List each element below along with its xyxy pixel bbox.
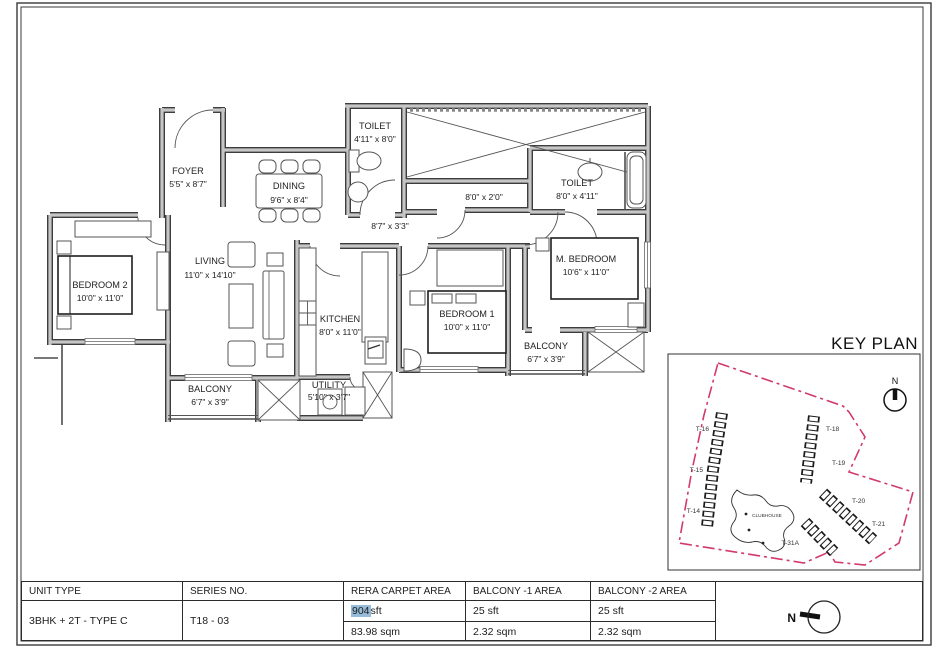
room-label-dining: DINING (273, 181, 305, 191)
room-dims-foyer: 5'5" x 8'7" (169, 179, 207, 189)
room-dims-bedroom2: 10'0" x 11'0" (77, 293, 124, 303)
tower-label-t14: T-14 (687, 508, 701, 515)
room-label-bedroom1: BEDROOM 1 (439, 309, 494, 319)
key-plan-north-icon: N (884, 376, 906, 411)
rera-sft-unit: sft (371, 605, 382, 617)
cell-balcony1-sft: 25 sft (466, 601, 591, 622)
header-balcony-1-area: BALCONY -1 AREA (466, 582, 591, 601)
room-label-balcony2: BALCONY (524, 341, 568, 351)
room-dims-living: 11'0" x 14'10" (184, 270, 235, 280)
room-dims-master-bedroom: 10'6" x 11'0" (563, 267, 610, 277)
north-arrow-label: N (787, 611, 796, 625)
header-rera-carpet-area: RERA CARPET AREA (344, 582, 466, 601)
room-dims-kitchen: 8'0" x 11'0" (319, 327, 361, 337)
room-label-living: LIVING (195, 256, 225, 266)
cell-unit-type-value: 3BHK + 2T - TYPE C (22, 601, 183, 641)
floor-plan: FOYER 5'5" x 8'7" DINING 9'6" x 8'4" TOI… (34, 106, 651, 425)
room-label-toilet2: TOILET (561, 178, 593, 188)
room-label-bedroom2: BEDROOM 2 (72, 280, 127, 290)
room-labels: FOYER 5'5" x 8'7" DINING 9'6" x 8'4" TOI… (72, 121, 616, 407)
key-plan-title: KEY PLAN (831, 334, 918, 353)
cell-balcony1-sqm: 2.32 sqm (466, 622, 591, 641)
room-dims-bedroom1: 10'0" x 11'0" (444, 322, 491, 332)
clubhouse-label: CLUBHOUSE (752, 513, 782, 519)
rera-sft-highlight: 904 (351, 605, 371, 617)
cell-series-no-value: T18 - 03 (183, 601, 344, 641)
tower-blocks (707, 413, 873, 552)
room-dims-utility: 5'10" x 3'7" (308, 392, 350, 402)
room-label-balcony1: BALCONY (188, 384, 232, 394)
north-arrow: N (716, 582, 924, 640)
tower-label-t16: T-16 (696, 426, 710, 433)
tower-label-t31a: T-31A (781, 540, 799, 547)
key-plan-north-label: N (892, 376, 899, 386)
key-plan: KEY PLAN T-16 T-15 T-14 T-18 T-19 T-20 T… (668, 334, 920, 570)
floor-plan-sheet: FOYER 5'5" x 8'7" DINING 9'6" x 8'4" TOI… (0, 0, 945, 667)
key-plan-frame (668, 354, 920, 570)
north-arrow-cell: N (716, 582, 924, 641)
room-label-foyer: FOYER (172, 166, 204, 176)
room-dims-dining: 9'6" x 8'4" (270, 195, 308, 205)
room-dims-toilet1: 4'11" x 8'0" (354, 134, 396, 144)
header-series-no: SERIES NO. (183, 582, 344, 601)
tower-label-t15: T-15 (690, 467, 704, 474)
tower-label-t19: T-19 (832, 460, 846, 467)
room-label-kitchen: KITCHEN (320, 314, 360, 324)
cell-rera-sft: 904 sft (344, 601, 466, 622)
cell-rera-sqm: 83.98 sqm (344, 622, 466, 641)
area-table: UNIT TYPE SERIES NO. RERA CARPET AREA BA… (21, 581, 923, 641)
furniture (57, 150, 646, 415)
tower-label-t21: T-21 (872, 521, 886, 528)
room-dims-balcony1: 6'7" x 3'9" (191, 397, 229, 407)
tower-label-t18: T-18 (826, 426, 840, 433)
cell-balcony2-sqm: 2.32 sqm (591, 622, 716, 641)
room-label-toilet1: TOILET (359, 121, 391, 131)
passage-dims-1: 8'7" x 3'3" (371, 221, 409, 231)
tower-label-t20: T-20 (852, 498, 866, 505)
room-label-utility: UTILITY (312, 380, 346, 390)
room-label-master-bedroom: M. BEDROOM (556, 254, 616, 264)
cell-balcony2-sft: 25 sft (591, 601, 716, 622)
drawing-canvas: FOYER 5'5" x 8'7" DINING 9'6" x 8'4" TOI… (0, 0, 945, 667)
room-dims-toilet2: 8'0" x 4'11" (556, 191, 598, 201)
site-boundary (679, 363, 913, 565)
passage-dims-2: 8'0" x 2'0" (465, 192, 503, 202)
header-balcony-2-area: BALCONY -2 AREA (591, 582, 716, 601)
room-dims-balcony2: 6'7" x 3'9" (527, 354, 565, 364)
header-unit-type: UNIT TYPE (22, 582, 183, 601)
